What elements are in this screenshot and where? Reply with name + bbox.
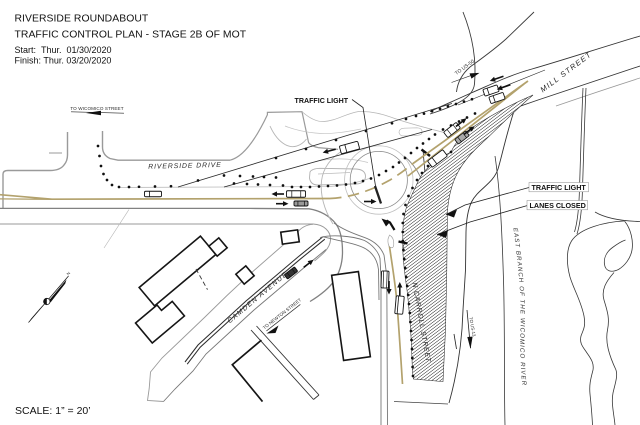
svg-text:LANES CLOSED: LANES CLOSED xyxy=(530,201,586,210)
svg-text:Start: Thur. 01/30/2020: Start: Thur. 01/30/2020 xyxy=(15,45,112,55)
svg-text:Finish: Thur. 03/20/2020: Finish: Thur. 03/20/2020 xyxy=(15,56,112,66)
svg-text:TRAFFIC CONTROL PLAN - STAGE 2: TRAFFIC CONTROL PLAN - STAGE 2B OF MOT xyxy=(15,30,247,41)
svg-text:TRAFFIC LIGHT: TRAFFIC LIGHT xyxy=(295,97,349,105)
svg-text:TRAFFIC LIGHT: TRAFFIC LIGHT xyxy=(532,183,587,192)
svg-text:TO WICOMICO STREET: TO WICOMICO STREET xyxy=(70,106,123,111)
svg-text:SCALE: 1” = 20’: SCALE: 1” = 20’ xyxy=(15,405,91,417)
svg-text:RIVERSIDE ROUNDABOUT: RIVERSIDE ROUNDABOUT xyxy=(15,14,149,25)
